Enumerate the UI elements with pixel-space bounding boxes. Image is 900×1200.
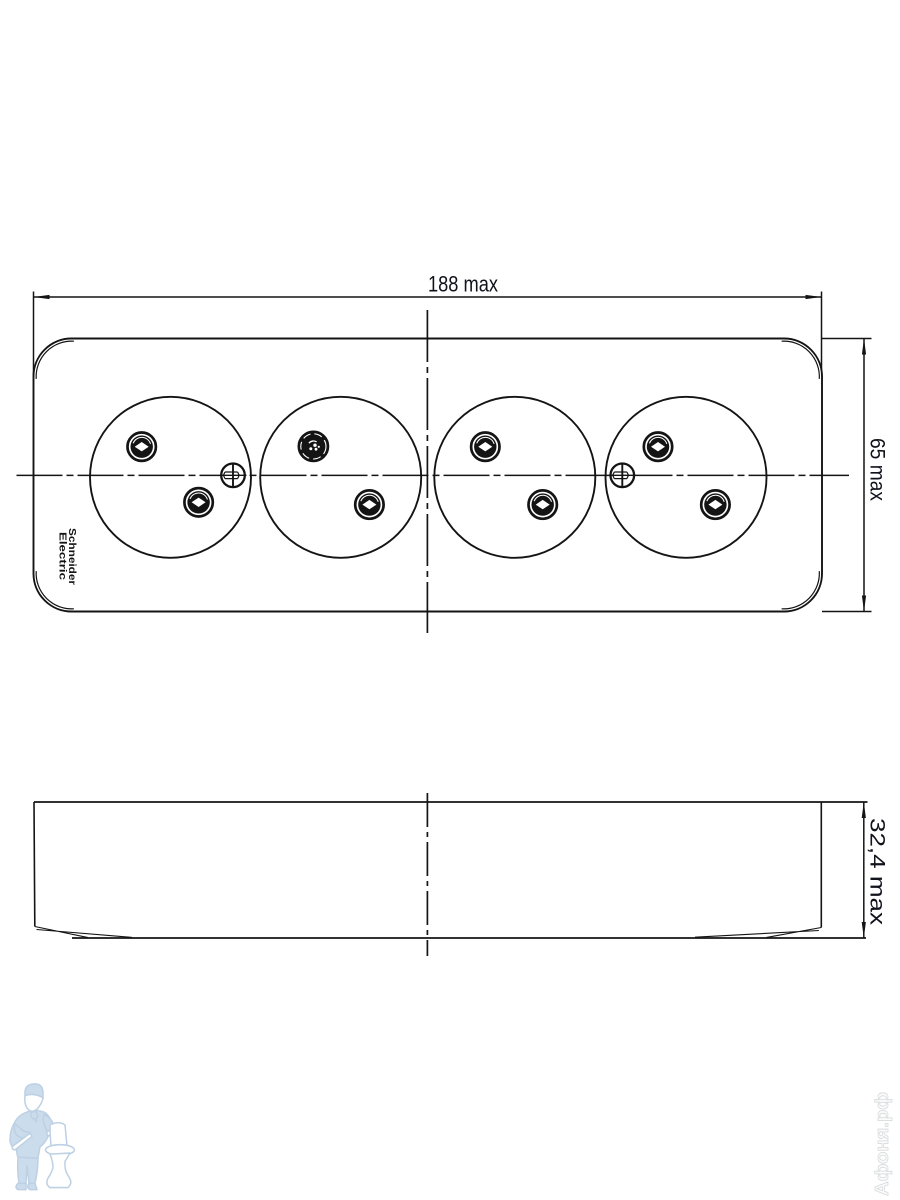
svg-text:SchneiderElectric: SchneiderElectric xyxy=(57,528,78,585)
svg-text:188 max: 188 max xyxy=(428,272,498,297)
svg-text:32,4 max: 32,4 max xyxy=(866,818,889,926)
svg-text:65 max: 65 max xyxy=(866,438,889,501)
svg-text:Афоня.рф: Афоня.рф xyxy=(872,1092,892,1196)
